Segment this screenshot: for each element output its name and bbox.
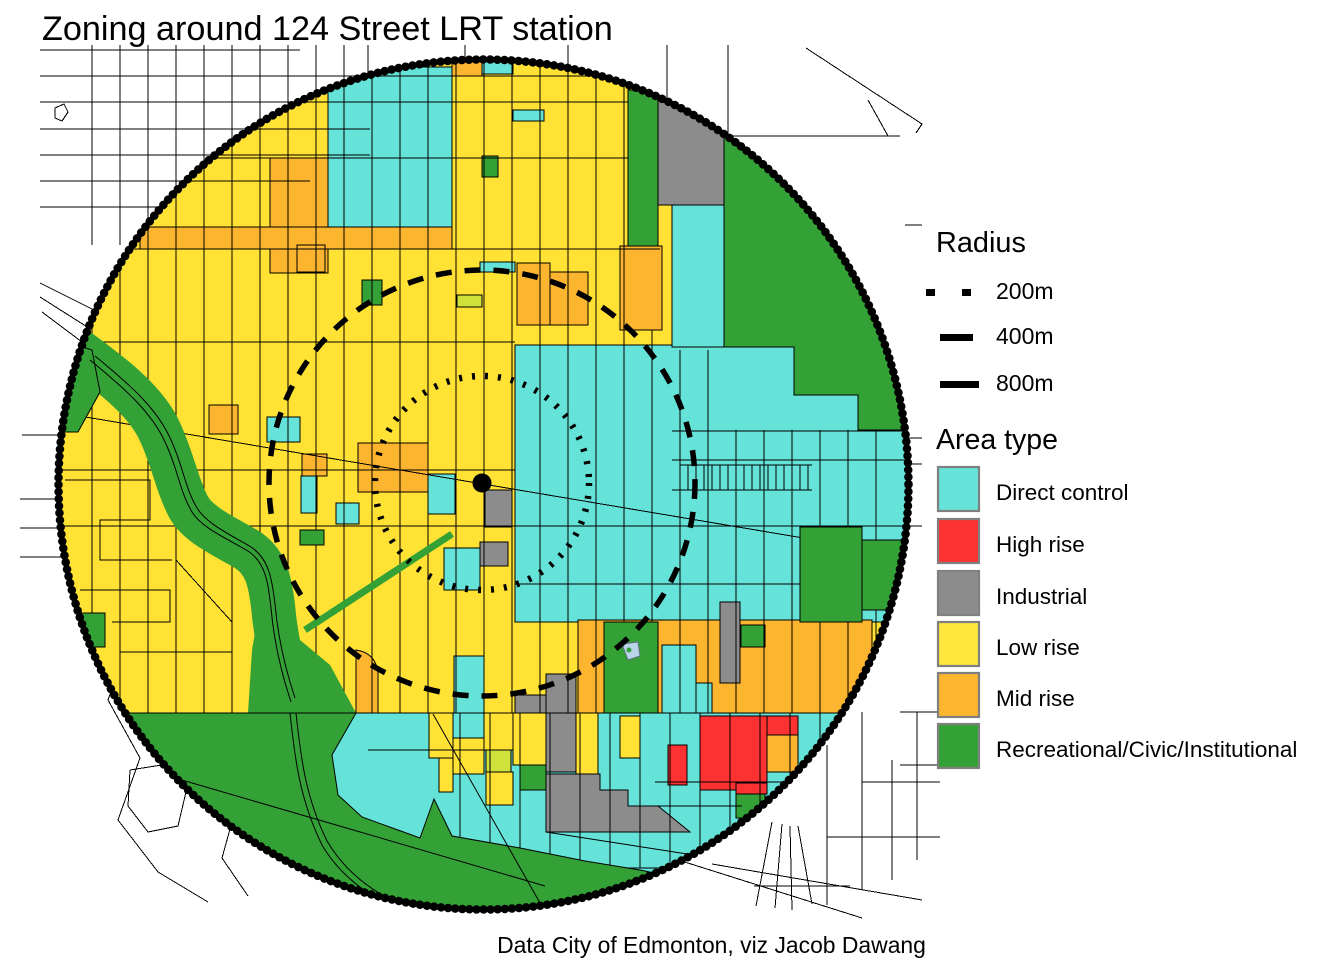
svg-text:800m: 800m bbox=[996, 370, 1054, 396]
svg-text:Mid rise: Mid rise bbox=[996, 686, 1075, 711]
svg-text:400m: 400m bbox=[996, 323, 1054, 349]
svg-text:Direct control: Direct control bbox=[996, 480, 1129, 505]
svg-text:High rise: High rise bbox=[996, 532, 1085, 557]
svg-text:200m: 200m bbox=[996, 278, 1054, 304]
svg-text:Area type: Area type bbox=[936, 424, 1058, 456]
svg-text:Low rise: Low rise bbox=[996, 635, 1080, 660]
svg-text:Zoning around 124 Street LRT s: Zoning around 124 Street LRT station bbox=[42, 10, 613, 48]
svg-text:Industrial: Industrial bbox=[996, 584, 1087, 609]
svg-text:Recreational/Civic/Institution: Recreational/Civic/Institutional bbox=[996, 737, 1297, 762]
svg-text:Radius: Radius bbox=[936, 227, 1026, 259]
svg-text:Data City of Edmonton, viz Jac: Data City of Edmonton, viz Jacob Dawang bbox=[497, 932, 926, 958]
